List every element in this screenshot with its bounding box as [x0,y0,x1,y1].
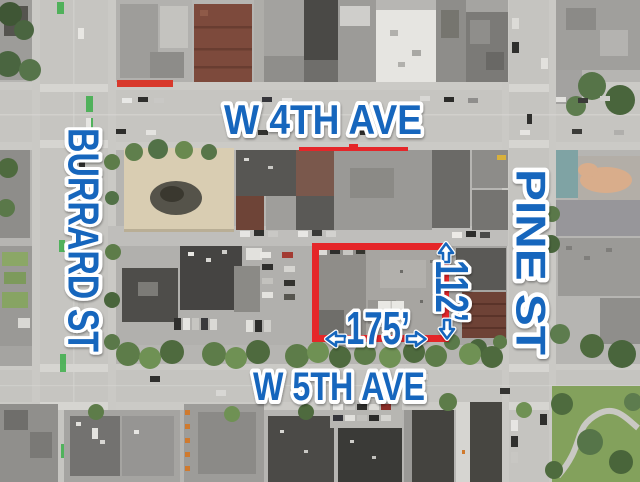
aerial-map-view: 175’ 112’ W 4TH AVE W 5TH AVE BURRARD ST… [0,0,640,482]
street-label-w4th-ave: W 4TH AVE [224,96,422,143]
storefront-awning [117,80,173,87]
aerial-map-svg: 175’ 112’ W 4TH AVE W 5TH AVE BURRARD ST… [0,0,640,482]
arrow-down-icon [440,320,454,339]
street-label-w5th-ave: W 5TH AVE [253,365,425,409]
lane-outline-line [299,147,408,151]
street-label-burrard-st: BURRARD ST [59,128,108,352]
depth-dimension-label: 112’ [426,260,478,322]
street-label-pine-st: PINE ST [508,169,555,355]
arrow-left-icon [327,332,346,346]
frontage-dimension-label: 175’ [346,302,410,354]
